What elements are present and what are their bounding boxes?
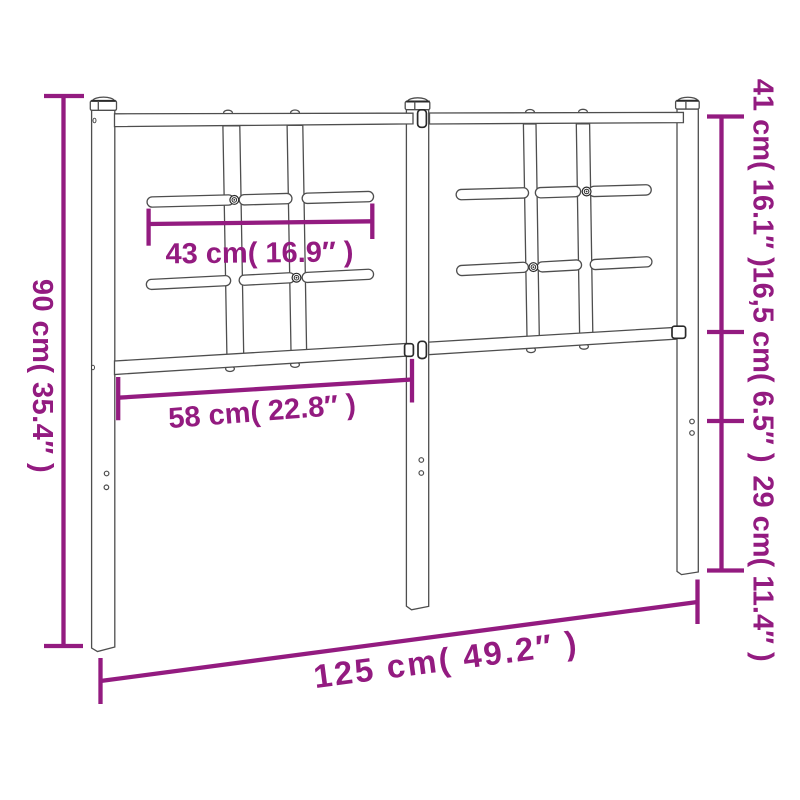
- svg-text:43 cm( 16.9″ ): 43 cm( 16.9″ ): [165, 236, 353, 270]
- svg-text:41 cm( 16.1″ ): 41 cm( 16.1″ ): [747, 79, 779, 267]
- svg-text:90 cm( 35.4″ ): 90 cm( 35.4″ ): [26, 279, 58, 473]
- svg-text:16,5 cm( 6.5″ ): 16,5 cm( 6.5″ ): [747, 266, 779, 462]
- svg-text:29 cm( 11.4″ ): 29 cm( 11.4″ ): [747, 475, 779, 661]
